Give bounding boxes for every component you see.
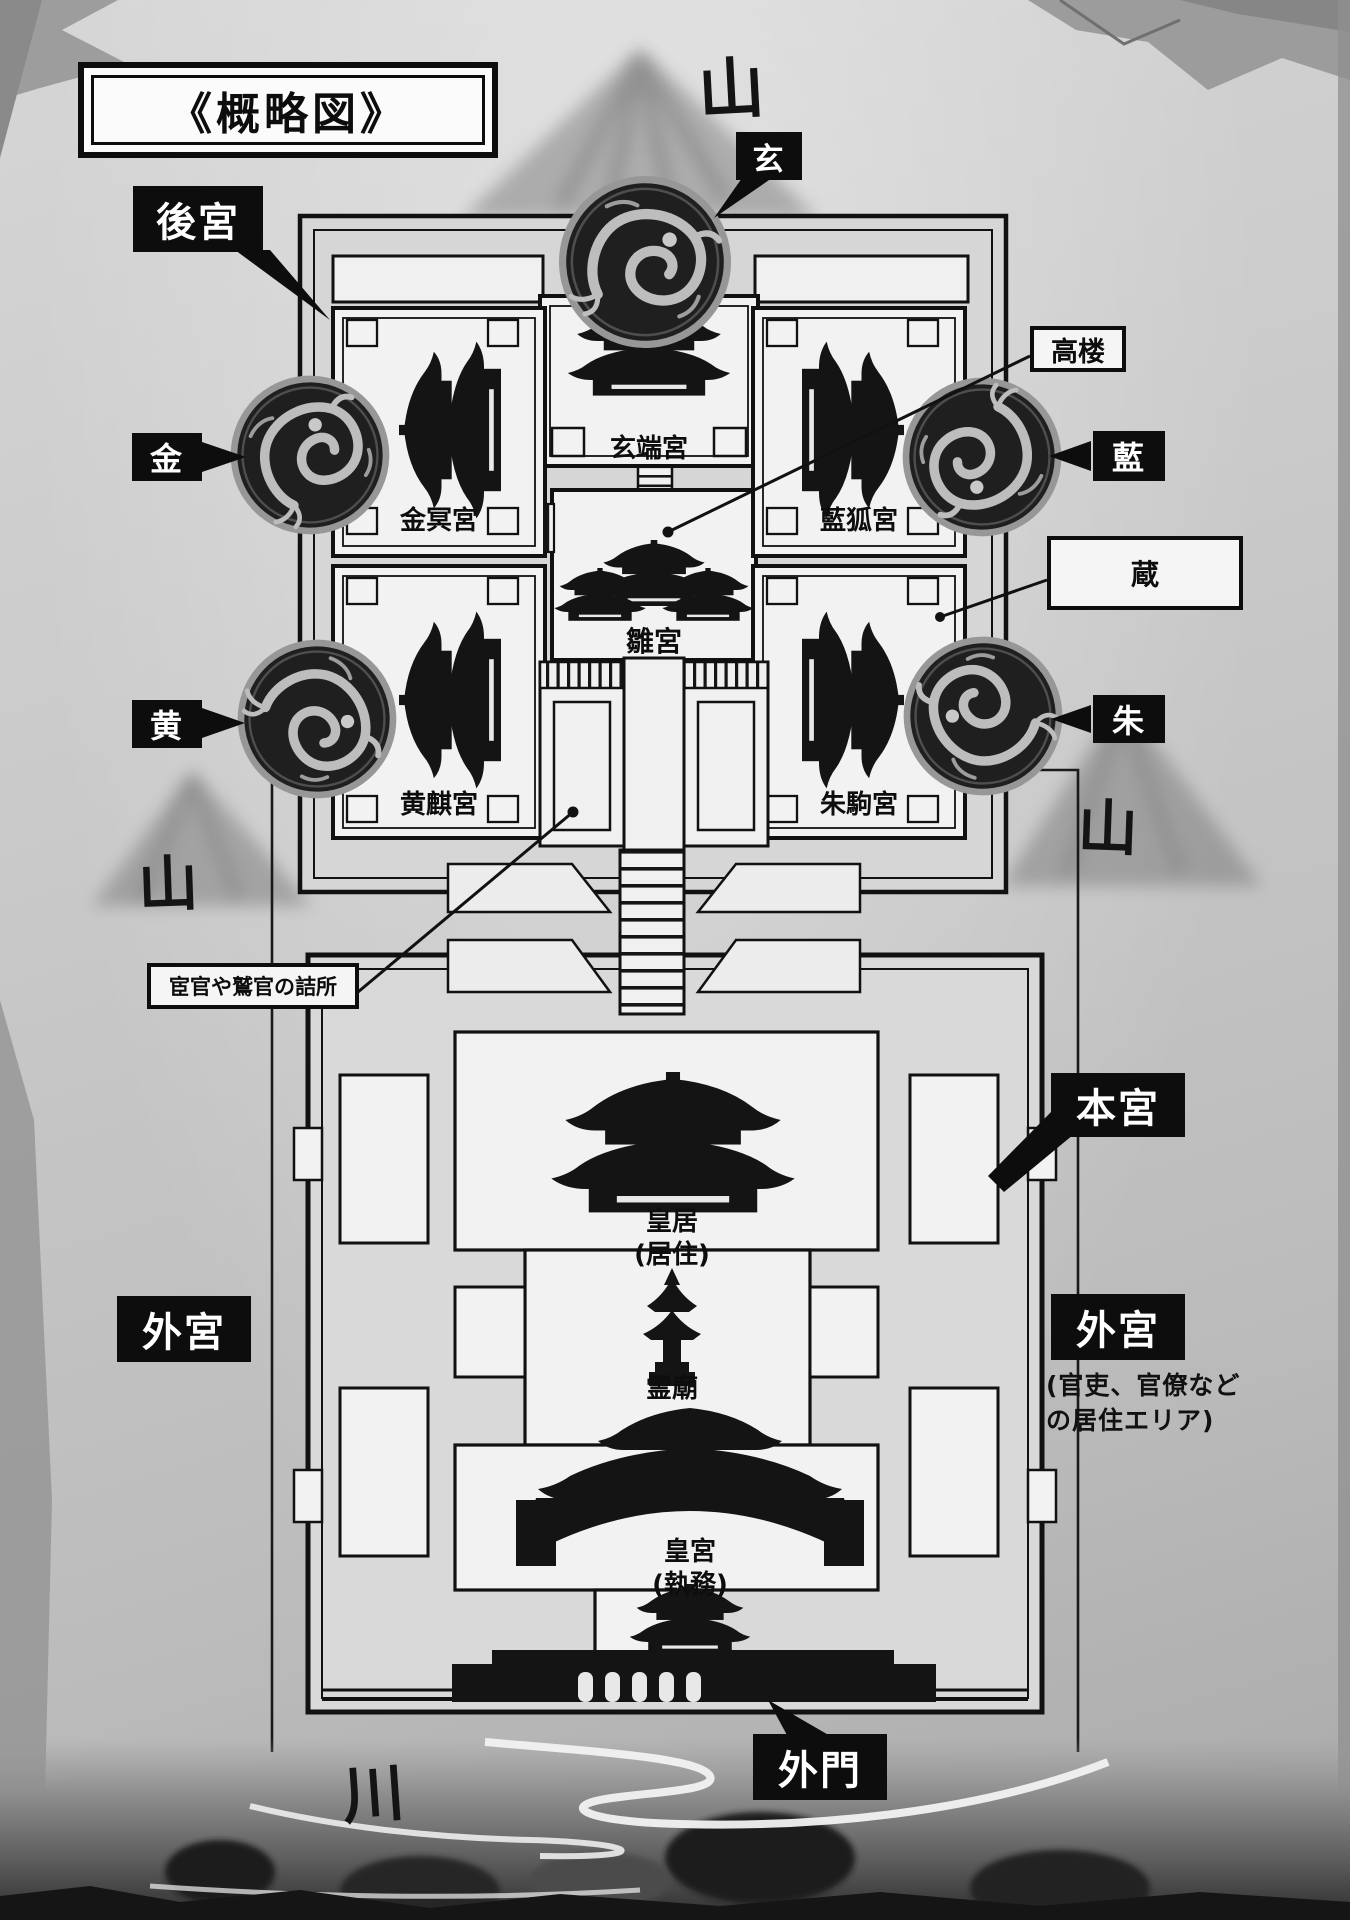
palace-label-shukukyuu: 朱駒宮	[789, 784, 929, 821]
medallion-label-shu: 朱	[1093, 695, 1165, 743]
mountain-right-label: 山	[1077, 779, 1140, 868]
building-label-koukyo: 皇居 (居住)	[592, 1206, 752, 1271]
area-label-gaimon: 外門	[753, 1734, 887, 1800]
palace-label-kinmeikyuu: 金冥宮	[369, 500, 509, 537]
building-label-reibyou: 霊廟	[592, 1368, 752, 1405]
palace-label-rankokyuu: 藍狐宮	[789, 500, 929, 537]
palace-label-gentankyuu: 玄端宮	[579, 428, 719, 465]
medallion-label-gen: 玄	[736, 132, 802, 180]
medallion-label-ran: 藍	[1093, 431, 1165, 481]
area-label-gekyuu-right: 外宮	[1051, 1294, 1185, 1360]
manga-map-page: 《概略図》 山 山 山 川 玄 金 藍 黄 朱 後宮 本宮 外宮 外宮 外門 (…	[0, 0, 1350, 1920]
labels-layer: 《概略図》 山 山 山 川 玄 金 藍 黄 朱 後宮 本宮 外宮 外宮 外門 (…	[0, 0, 1350, 1920]
page-title: 《概略図》	[91, 75, 485, 145]
koukyo-note: (居住)	[592, 1239, 752, 1272]
gekyuu-note-line1: (官吏、官僚など	[1046, 1368, 1276, 1403]
area-label-hongu: 本宮	[1051, 1073, 1185, 1137]
palace-label-oukikyuu: 黄麒宮	[369, 784, 509, 821]
callout-kura: 蔵	[1047, 536, 1243, 610]
gekyuu-right-note: (官吏、官僚など の居住エリア)	[1046, 1368, 1276, 1438]
title-box: 《概略図》	[78, 62, 498, 158]
river-label: 川	[339, 1742, 407, 1836]
callout-kourou: 高楼	[1030, 326, 1126, 372]
palace-label-hinakyuu: 雛宮	[584, 620, 724, 660]
medallion-label-ou: 黄	[132, 700, 202, 748]
gekyuu-note-line2: の居住エリア)	[1046, 1403, 1276, 1438]
area-label-gekyuu-left: 外宮	[117, 1296, 251, 1362]
area-label-koukyuu: 後宮	[133, 186, 263, 252]
kouguu-name: 皇宮	[610, 1536, 770, 1569]
mountain-left-label: 山	[137, 835, 200, 924]
koukyo-name: 皇居	[592, 1206, 752, 1239]
medallion-label-kin: 金	[132, 433, 202, 481]
kouguu-note: (執務)	[610, 1569, 770, 1602]
callout-tsumesho: 宦官や鷲官の詰所	[147, 963, 359, 1009]
building-label-kouguu: 皇宮 (執務)	[610, 1536, 770, 1601]
mountain-top-label: 山	[696, 34, 767, 133]
